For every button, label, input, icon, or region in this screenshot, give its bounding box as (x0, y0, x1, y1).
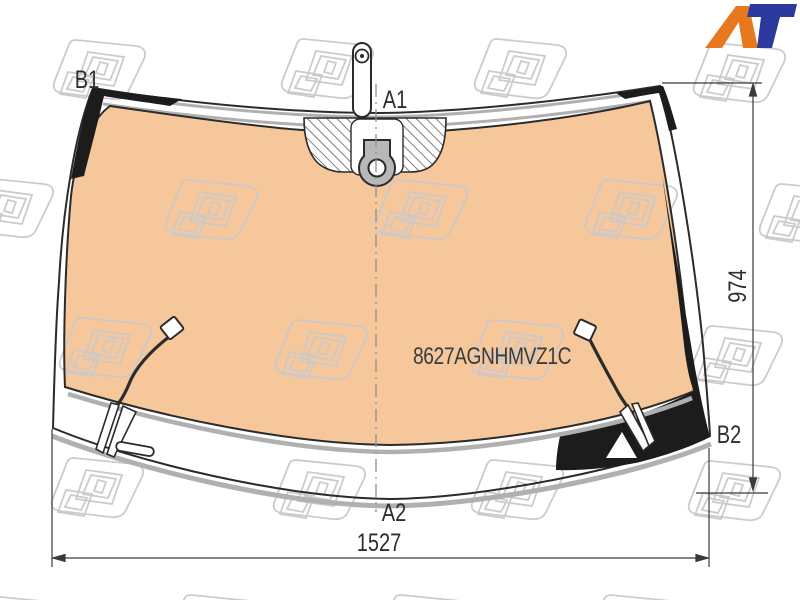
anchor-label-b2: B2 (705, 421, 753, 449)
anchor-label-a2: A2 (370, 499, 418, 527)
windshield-diagram-page: B1 A1 B2 A2 974 1527 8627AGNHMVZ1C (0, 0, 800, 600)
at-logo-letter-t-stem (757, 17, 780, 48)
anchor-label-a1: A1 (371, 86, 419, 114)
bracket-hole (369, 160, 386, 177)
antenna-mount (353, 43, 371, 117)
dimension-value-width: 1527 (347, 529, 411, 557)
anchor-label-b1: B1 (63, 66, 111, 94)
dimension-value-height: 974 (724, 254, 752, 318)
part-number: 8627AGNHMVZ1C (413, 343, 557, 371)
at-logo-letter-t-bar (747, 4, 797, 17)
at-logo (705, 4, 797, 48)
